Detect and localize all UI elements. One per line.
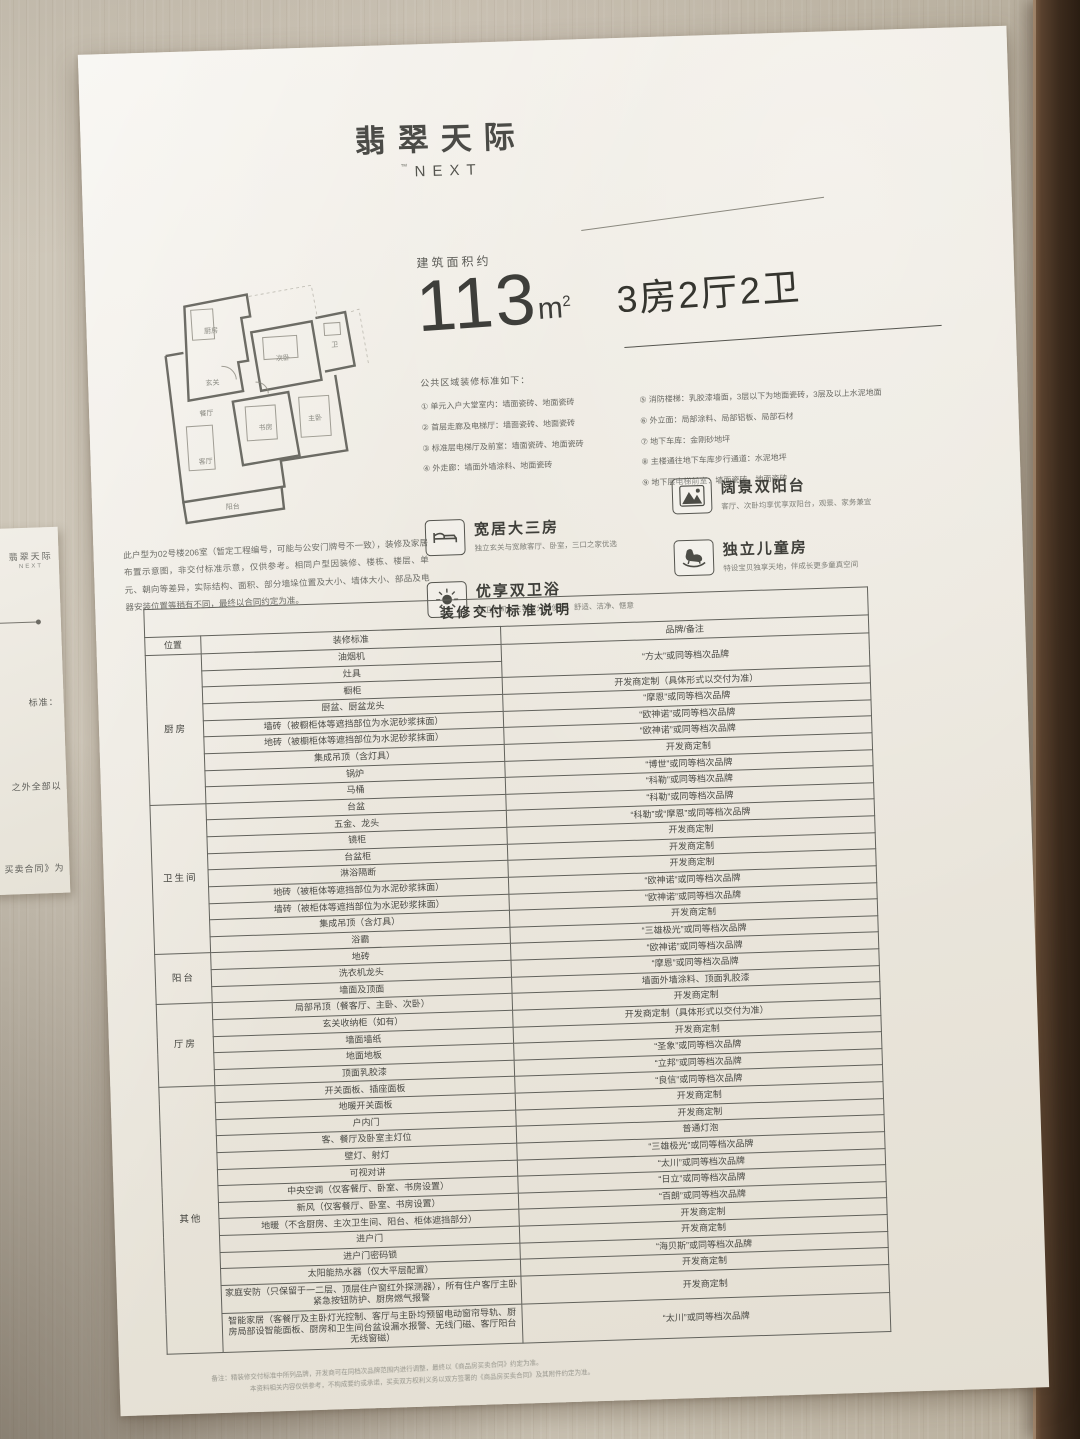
- feature-desc: 客厅、次卧均享优享双阳台，观景、家务兼宜: [721, 496, 871, 512]
- left-sign-rule: [0, 621, 37, 624]
- left-sign-text-fragment: 之外全部以: [11, 779, 61, 794]
- left-sign-text-fragment: 标准：: [28, 695, 58, 709]
- header-rule: [581, 197, 824, 231]
- public-area-list-left: ① 单元入户大堂室内：墙面瓷砖、地面瓷砖② 首层走廊及电梯厅：墙面瓷砖、地面瓷砖…: [421, 390, 643, 501]
- mountain-icon: [671, 477, 712, 514]
- feature-desc: 独立玄关与宽敞客厅、卧室，三口之家优选: [474, 538, 617, 553]
- left-sign-text-fragment: 买卖合同》为: [4, 861, 64, 876]
- col-header-location: 位置: [145, 636, 202, 656]
- item-cell: 智能家居（客餐厅及主卧灯光控制、客厅与主卧均预留电动窗帘导轨、厨房局部设智能面板…: [222, 1304, 523, 1353]
- room-label: 玄关: [205, 378, 220, 388]
- brand-logo-next: NEXT: [414, 161, 483, 180]
- feature-title: 宽居大三房: [474, 514, 617, 539]
- room-label: 主卧: [308, 413, 323, 423]
- area-value: 113: [414, 265, 539, 342]
- room-label: 客厅: [198, 456, 213, 466]
- category-cell: 阳台: [155, 953, 213, 1005]
- feature-card: 独立儿童房 特设宝贝独享天地，伴成长更多童真空间: [673, 533, 919, 577]
- floor-plan-drawing: 厨房 玄关 次卧 卫 餐厅 书房 客厅 主卧 阳台: [125, 266, 428, 533]
- unit-spec: 建筑面积约 113 m2 3房2厅2卫: [416, 238, 942, 349]
- spec-table-body: 装修交付标准说明 位置 装修标准 品牌/备注 厨房油烟机“方太”或同等档次品牌灶…: [144, 587, 891, 1354]
- layout-text: 3房2厅2卫: [615, 257, 803, 324]
- trademark-mark: ™: [400, 163, 414, 170]
- delivery-standard-table: 装修交付标准说明 位置 装修标准 品牌/备注 厨房油烟机“方太”或同等档次品牌灶…: [143, 586, 890, 1354]
- category-cell: 厅房: [156, 1003, 215, 1088]
- brand-logo-chinese: 翡翠天际: [310, 110, 571, 163]
- category-cell: 厨房: [145, 654, 206, 805]
- feature-card: 宽居大三房 独立玄关与宽敞客厅、卧室，三口之家优选: [425, 513, 671, 557]
- rocking-horse-icon: [673, 539, 714, 576]
- room-label: 厨房: [204, 326, 219, 336]
- feature-title: 阔景双阳台: [720, 472, 871, 498]
- left-sign-logo-en: NEXT: [9, 563, 53, 571]
- left-sign-logo: 翡翠天际 NEXT: [8, 549, 53, 571]
- category-cell: 其他: [159, 1086, 223, 1354]
- feature-card: 阔景双阳台 客厅、次卧均享优享双阳台，观景、家务兼宜: [671, 471, 917, 515]
- feature-desc: 特设宝贝独享天地，伴成长更多童真空间: [723, 559, 858, 574]
- category-cell: 卫生间: [150, 804, 211, 955]
- area-unit-sup: 2: [562, 293, 572, 311]
- left-sign-logo-cn: 翡翠天际: [8, 549, 52, 564]
- floor-plan: 厨房 玄关 次卧 卫 餐厅 书房 客厅 主卧 阳台: [125, 266, 428, 538]
- layout-underline: [624, 325, 941, 348]
- room-label: 次卧: [276, 353, 291, 363]
- bed-icon: [425, 519, 466, 556]
- area-unit: m2: [537, 291, 573, 327]
- brand-logo-english: ™NEXT: [311, 158, 571, 183]
- feature-title: 独立儿童房: [722, 535, 858, 560]
- brand-logo: 翡翠天际 ™NEXT: [310, 110, 572, 184]
- floorplan-poster: 翡翠天际 ™NEXT 建筑面积约 113 m2 3房2厅2卫: [78, 26, 1049, 1417]
- room-label: 书房: [258, 422, 273, 432]
- room-label: 卫: [331, 341, 339, 349]
- room-label: 餐厅: [199, 408, 214, 418]
- room-label: 阳台: [225, 502, 240, 512]
